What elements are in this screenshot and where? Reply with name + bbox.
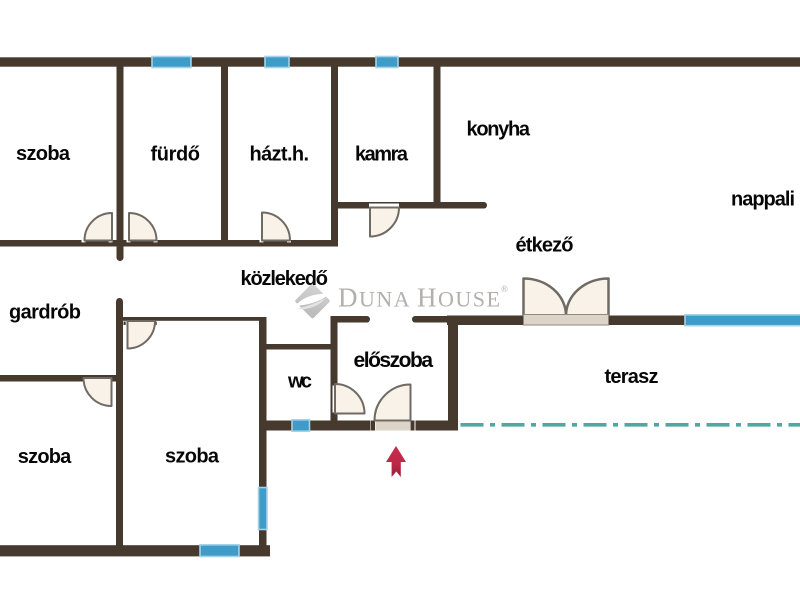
svg-text:kamra: kamra — [355, 144, 409, 166]
svg-text:szoba: szoba — [18, 446, 72, 468]
svg-text:közlekedő: közlekedő — [241, 268, 329, 290]
svg-text:konyha: konyha — [467, 119, 531, 141]
svg-text:előszoba: előszoba — [354, 349, 434, 372]
svg-text:wc: wc — [287, 371, 312, 393]
svg-text:étkező: étkező — [516, 235, 574, 257]
svg-text:gardrób: gardrób — [9, 302, 81, 324]
svg-text:®: ® — [501, 284, 508, 294]
svg-text:nappali: nappali — [731, 189, 795, 211]
svg-text:szoba: szoba — [165, 446, 220, 468]
svg-text:házt.h.: házt.h. — [250, 144, 310, 166]
svg-text:terasz: terasz — [605, 366, 659, 388]
svg-text:DUNA HOUSE: DUNA HOUSE — [338, 283, 501, 313]
svg-text:szoba: szoba — [16, 143, 71, 165]
svg-text:fürdő: fürdő — [151, 144, 201, 166]
